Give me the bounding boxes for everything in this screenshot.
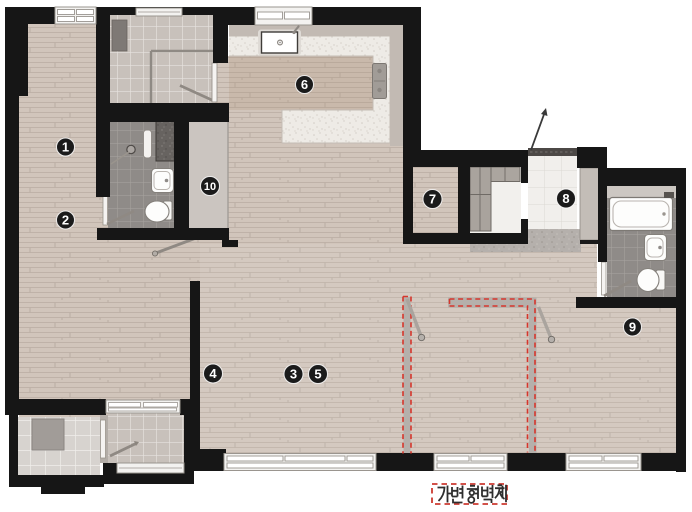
svg-text:8: 8 [562, 191, 569, 206]
svg-text:4: 4 [209, 366, 217, 381]
svg-text:1: 1 [62, 140, 69, 155]
svg-text:6: 6 [301, 77, 308, 92]
svg-text:2: 2 [62, 213, 69, 228]
svg-text:5: 5 [314, 367, 321, 382]
svg-text:10: 10 [204, 181, 216, 193]
svg-text:3: 3 [290, 367, 297, 382]
svg-text:9: 9 [629, 320, 636, 335]
svg-text:7: 7 [429, 192, 436, 207]
